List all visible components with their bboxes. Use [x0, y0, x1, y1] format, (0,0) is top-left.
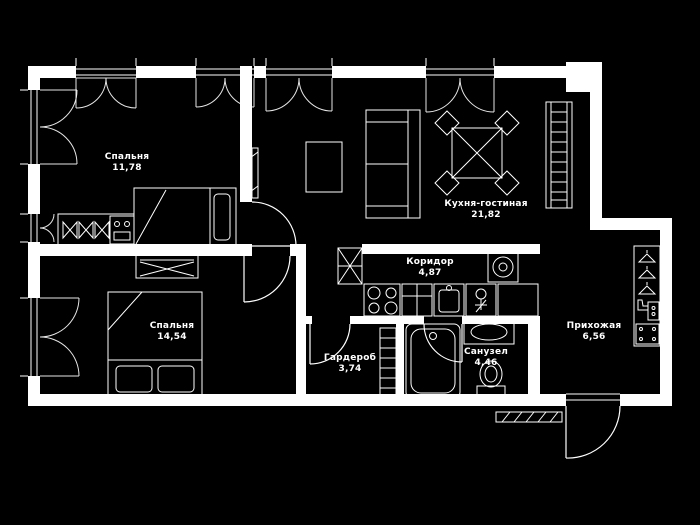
- room-name: Кухня-гостиная: [444, 199, 527, 210]
- sofa-icon: [366, 110, 420, 218]
- washing-machine-icon: [488, 252, 518, 282]
- window-icon: [20, 58, 494, 376]
- dresser-icon: [110, 216, 134, 244]
- kitchen-sink-icon: [434, 284, 464, 316]
- fridge-icon: [498, 284, 538, 316]
- shoe-icon: [638, 300, 648, 310]
- room-name: Прихожая: [567, 321, 622, 332]
- bed-icon: [134, 188, 236, 246]
- hall-cabinet-icon: [648, 302, 659, 320]
- appliance-icon: [466, 284, 496, 316]
- floor-plan-drawing: [0, 0, 700, 525]
- wardrobe-shelf-icon: [380, 328, 396, 396]
- room-name: Спальня: [150, 321, 195, 332]
- room-name: Спальня: [105, 152, 150, 163]
- room-name: Коридор: [406, 257, 454, 268]
- vent-shaft-icon: [338, 248, 362, 284]
- kitchen-counter-icon: [402, 284, 432, 316]
- room-name: Санузел: [464, 347, 508, 358]
- room-area: 21,82: [444, 210, 527, 221]
- door-arc-icon: [244, 202, 462, 364]
- room-name: Гардероб: [324, 353, 376, 364]
- pouf-icon: [636, 324, 659, 344]
- room-area: 4,46: [464, 358, 508, 369]
- double-bed-icon: [108, 292, 202, 398]
- room-area: 3,74: [324, 364, 376, 375]
- room-area: 14,54: [150, 332, 195, 343]
- room-label-bathroom: Санузел 4,46: [464, 347, 508, 370]
- room-area: 4,87: [406, 268, 454, 279]
- room-label-corridor: Коридор 4,87: [406, 257, 454, 280]
- dining-table-icon: [452, 128, 502, 178]
- shelving-icon: [546, 102, 572, 208]
- stove-icon: [364, 284, 400, 316]
- room-label-kitchen-living: Кухня-гостиная 21,82: [444, 199, 527, 222]
- hanger-icon: [58, 214, 134, 246]
- room-area: 11,78: [105, 163, 150, 174]
- coffee-table-icon: [306, 142, 342, 192]
- room-label-wardrobe: Гардероб 3,74: [324, 353, 376, 376]
- floor-plan-canvas: Спальня 11,78 Кухня-гостиная 21,82 Спаль…: [0, 0, 700, 525]
- room-label-bedroom2: Спальня 14,54: [150, 321, 195, 344]
- room-label-bedroom1: Спальня 11,78: [105, 152, 150, 175]
- room-label-hallway: Прихожая 6,56: [567, 321, 622, 344]
- room-area: 6,56: [567, 332, 622, 343]
- coat-rack-icon: [634, 246, 660, 346]
